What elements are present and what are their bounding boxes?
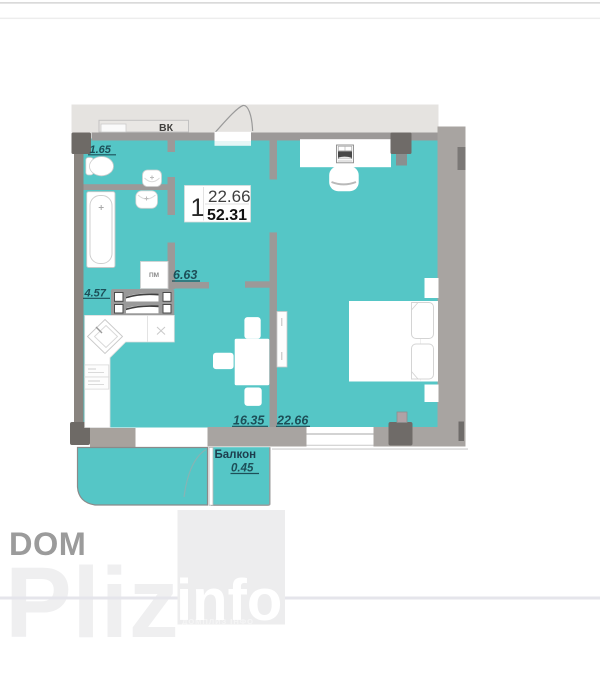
svg-text:ДОМПЛИЗ ІНФО: ДОМПЛИЗ ІНФО <box>182 617 254 626</box>
svg-text:16.35: 16.35 <box>233 414 265 428</box>
svg-text:1: 1 <box>191 194 205 222</box>
svg-text:ПМ: ПМ <box>149 272 159 279</box>
svg-text:ВК: ВК <box>159 122 174 134</box>
svg-text:22.66: 22.66 <box>208 187 251 206</box>
svg-text:Pliz: Pliz <box>5 547 179 659</box>
svg-text:52.31: 52.31 <box>207 207 247 224</box>
svg-text:0.45: 0.45 <box>231 463 254 475</box>
svg-text:22.66: 22.66 <box>276 414 309 428</box>
svg-text:Балкон: Балкон <box>215 449 257 461</box>
svg-text:DOM: DOM <box>9 526 86 562</box>
svg-text:6.63: 6.63 <box>173 268 197 282</box>
